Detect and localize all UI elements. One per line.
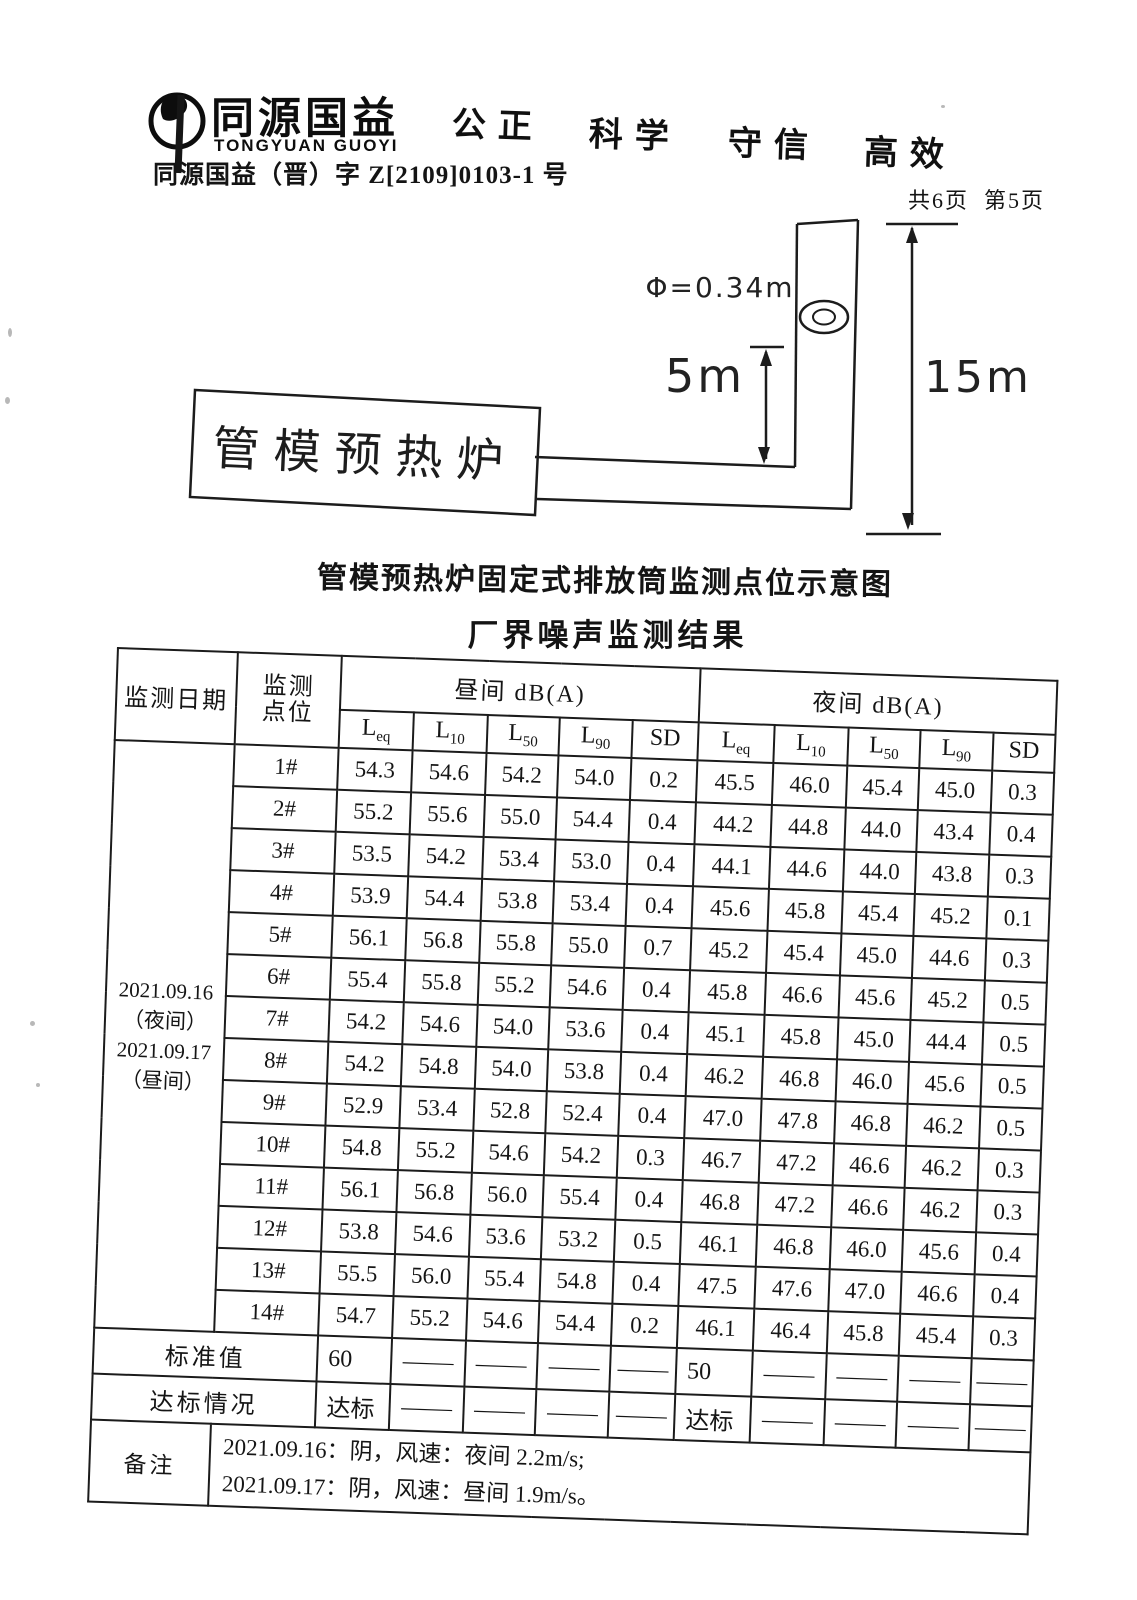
standard-row-label: 标准值 (93, 1328, 318, 1382)
value-cell: 55.2 (392, 1296, 467, 1341)
dash-placeholder: — (909, 1366, 960, 1395)
value-cell: 47.8 (760, 1099, 835, 1144)
dim15-arrow-up (906, 226, 918, 243)
value-cell: 45.6 (839, 975, 912, 1019)
metric-main: SD (649, 724, 681, 751)
metric-main: L (796, 729, 812, 755)
value-cell: 45.8 (768, 889, 843, 934)
scan-speckle (941, 105, 945, 108)
value-cell: 54.0 (476, 1005, 549, 1049)
standard-row-value: 60 (316, 1335, 392, 1384)
value-cell: 0.7 (624, 926, 691, 970)
value-cell: 55.2 (336, 790, 411, 835)
value-cell: 0.3 (978, 1148, 1041, 1192)
metric-header: SD (631, 720, 698, 760)
value-cell: 46.0 (830, 1227, 903, 1271)
noise-table-wrapper: 监测日期 监测 点位 昼间 dB(A) 夜间 dB(A) LeqL10L50L9… (87, 647, 1058, 1535)
value-cell: 45.2 (911, 978, 985, 1023)
value-cell: 46.1 (677, 1306, 754, 1351)
header-point-line2: 点位 (236, 698, 339, 728)
value-cell: 54.6 (472, 1131, 545, 1175)
value-cell: 52.4 (545, 1091, 619, 1136)
value-cell: 46.8 (756, 1225, 831, 1270)
stack-right-edge (851, 220, 858, 509)
stack-height-label: 15m (924, 352, 1032, 403)
value-cell: 46.6 (900, 1272, 974, 1317)
compliance-row-value: — (608, 1392, 676, 1440)
header-date: 监测日期 (115, 648, 238, 744)
dim5-arrow-up (760, 349, 772, 366)
compliance-row-value: — (463, 1387, 537, 1435)
metric-main: L (580, 722, 596, 748)
value-cell: 45.4 (899, 1314, 973, 1359)
metric-sub: 50 (522, 734, 538, 751)
value-cell: 0.4 (626, 884, 693, 928)
value-cell: 53.4 (482, 837, 555, 881)
value-cell: 46.6 (833, 1143, 906, 1187)
value-cell: 54.6 (402, 1002, 477, 1047)
value-cell: 46.2 (906, 1104, 980, 1149)
value-cell: 47.0 (684, 1096, 761, 1141)
value-cell: 0.4 (612, 1262, 679, 1306)
dash-placeholder: — (401, 1394, 452, 1423)
stack-left-edge (795, 224, 797, 467)
scan-speckle (8, 328, 12, 337)
value-cell: 56.8 (405, 918, 480, 963)
compliance-row-value: — (824, 1399, 898, 1447)
point-cell: 1# (233, 744, 338, 790)
value-cell: 46.8 (681, 1180, 758, 1225)
value-cell: 47.2 (759, 1141, 834, 1186)
sampling-port-inner (813, 310, 835, 325)
value-cell: 45.6 (908, 1062, 982, 1107)
value-cell: 0.5 (614, 1220, 681, 1264)
value-cell: 53.6 (469, 1215, 542, 1259)
metric-sub: eq (376, 728, 391, 744)
point-cell: 13# (216, 1248, 321, 1294)
value-cell: 55.8 (404, 960, 479, 1005)
value-cell: 0.3 (991, 771, 1054, 815)
value-cell: 54.4 (556, 797, 630, 842)
scan-speckle (5, 397, 10, 404)
point-cell: 9# (221, 1080, 326, 1126)
dash-placeholder: — (546, 1399, 597, 1428)
value-cell: 46.8 (834, 1101, 907, 1145)
slogan-integrity: 守信 (727, 115, 821, 167)
point-cell: 11# (219, 1164, 324, 1210)
dash-placeholder: — (617, 1355, 668, 1384)
compliance-row-label: 达标情况 (91, 1374, 316, 1428)
value-cell: 46.2 (905, 1146, 979, 1191)
value-cell: 45.0 (837, 1017, 910, 1061)
value-cell: 55.2 (478, 963, 551, 1007)
value-cell: 55.6 (410, 792, 485, 837)
value-cell: 53.0 (554, 839, 628, 884)
duct-bottom-line (537, 499, 851, 509)
date-line: （夜间） (105, 1004, 224, 1038)
value-cell: 45.6 (692, 886, 769, 931)
value-cell: 0.4 (973, 1274, 1036, 1318)
table-title: 厂界噪声监测结果 (80, 610, 1135, 655)
slogan-efficiency: 高效 (863, 124, 957, 176)
value-cell: 53.9 (333, 874, 408, 919)
dash-placeholder: — (548, 1353, 599, 1382)
dim5-arrow-down (758, 447, 770, 464)
value-cell: 54.8 (324, 1126, 399, 1171)
value-cell: 47.6 (754, 1267, 829, 1312)
value-cell: 56.1 (331, 916, 406, 961)
value-cell: 54.3 (337, 748, 412, 793)
value-cell: 46.7 (683, 1138, 760, 1183)
value-cell: 52.8 (473, 1089, 546, 1133)
dash-placeholder: — (762, 1406, 813, 1435)
dash-placeholder: — (975, 1414, 1026, 1443)
metric-header: L90 (919, 730, 993, 771)
metric-header: Leq (339, 710, 414, 751)
value-cell: 43.4 (916, 810, 990, 855)
value-cell: 54.6 (466, 1299, 539, 1343)
value-cell: 45.2 (913, 894, 987, 939)
slogan-fairness: 公正 (451, 96, 545, 148)
value-cell: 52.9 (325, 1084, 400, 1129)
value-cell: 45.1 (687, 1012, 764, 1057)
metric-main: L (941, 734, 957, 760)
value-cell: 55.4 (542, 1175, 616, 1220)
value-cell: 0.1 (986, 897, 1049, 941)
metric-main: SD (1008, 737, 1040, 764)
value-cell: 44.8 (770, 805, 845, 850)
point-cell: 8# (223, 1038, 328, 1084)
value-cell: 0.4 (627, 842, 694, 886)
value-cell: 0.5 (981, 1064, 1044, 1108)
value-cell: 44.6 (912, 936, 986, 981)
standard-row-value: — (609, 1346, 677, 1394)
value-cell: 46.1 (680, 1222, 757, 1267)
value-cell: 55.2 (398, 1128, 473, 1173)
noise-monitoring-table: 监测日期 监测 点位 昼间 dB(A) 夜间 dB(A) LeqL10L50L9… (87, 647, 1058, 1535)
port-height-label: 5m (665, 349, 745, 403)
value-cell: 54.6 (550, 965, 624, 1010)
metric-header: L50 (487, 715, 560, 755)
value-cell: 54.2 (485, 753, 558, 797)
value-cell: 45.6 (902, 1230, 976, 1275)
document-number: 同源国益（晋）字 Z[2109]0103-1 号 (153, 155, 569, 191)
metric-sub: 10 (450, 731, 466, 748)
dash-placeholder: — (836, 1363, 887, 1392)
value-cell: 54.6 (395, 1212, 470, 1257)
brand-name-en: TONGYUAN GUOYI (214, 136, 398, 156)
stack-top-edge (797, 220, 858, 224)
value-cell: 56.0 (470, 1173, 543, 1217)
value-cell: 56.0 (394, 1254, 469, 1299)
value-cell: 53.8 (481, 879, 554, 923)
value-cell: 53.2 (541, 1217, 615, 1262)
value-cell: 55.4 (467, 1257, 540, 1301)
date-line: （昼间） (103, 1064, 222, 1098)
value-cell: 54.8 (539, 1259, 613, 1304)
value-cell: 44.0 (843, 850, 916, 894)
compliance-row-value: — (969, 1404, 1033, 1452)
scan-speckle (30, 1021, 35, 1026)
value-cell: 45.5 (696, 760, 773, 805)
compliance-row-value: — (535, 1389, 610, 1438)
value-cell: 46.8 (762, 1057, 837, 1102)
metric-main: L (869, 732, 885, 758)
value-cell: 54.8 (401, 1044, 476, 1089)
page-indicator: 共6页 第5页 (908, 183, 1045, 215)
value-cell: 45.4 (846, 766, 919, 810)
duct-top-line (535, 457, 795, 467)
value-cell: 45.4 (766, 931, 841, 976)
value-cell: 54.6 (411, 750, 486, 795)
point-cell: 14# (214, 1290, 319, 1336)
metric-header: Leq (697, 722, 774, 763)
scan-speckle (36, 1083, 40, 1087)
metric-sub: 90 (595, 736, 611, 753)
metric-sub: 90 (956, 749, 972, 766)
value-cell: 53.8 (547, 1049, 621, 1094)
point-cell: 7# (224, 996, 329, 1042)
metric-header: L10 (413, 712, 488, 753)
value-cell: 55.8 (479, 921, 552, 965)
value-cell: 45.4 (841, 891, 914, 935)
metric-sub: eq (736, 741, 751, 757)
value-cell: 0.4 (623, 968, 690, 1012)
metric-main: L (508, 719, 524, 745)
value-cell: 56.1 (322, 1168, 397, 1213)
point-cell: 3# (230, 828, 335, 874)
value-cell: 0.4 (621, 1010, 688, 1054)
compliance-row-value: 达标 (674, 1394, 752, 1443)
value-cell: 46.2 (686, 1054, 763, 1099)
point-cell: 12# (217, 1206, 322, 1252)
standard-row-value: — (390, 1338, 466, 1387)
value-cell: 54.0 (557, 755, 631, 800)
value-cell: 43.8 (915, 852, 989, 897)
value-cell: 0.5 (982, 1022, 1045, 1066)
metric-header: SD (992, 733, 1055, 773)
monitoring-date-cell: 2021.09.16（夜间）2021.09.17（昼间） (94, 740, 234, 1332)
value-cell: 45.0 (840, 933, 913, 977)
value-cell: 47.5 (678, 1264, 755, 1309)
compliance-row-value: — (896, 1402, 971, 1451)
point-cell: 5# (227, 912, 332, 958)
value-cell: 45.8 (763, 1015, 838, 1060)
value-cell: 45.8 (827, 1311, 900, 1355)
value-cell: 0.5 (983, 980, 1046, 1024)
remark-label: 备注 (88, 1420, 211, 1506)
diameter-label: Φ=0.34m (645, 271, 794, 304)
value-cell: 0.4 (615, 1178, 682, 1222)
metric-main: L (435, 717, 451, 743)
dash-placeholder: — (907, 1412, 958, 1441)
value-cell: 53.6 (548, 1007, 622, 1052)
dash-placeholder: — (474, 1396, 525, 1425)
metric-main: L (721, 727, 737, 753)
value-cell: 46.6 (765, 973, 840, 1018)
dash-placeholder: — (835, 1409, 886, 1438)
value-cell: 54.2 (328, 1000, 403, 1045)
value-cell: 0.4 (975, 1232, 1038, 1276)
metric-header: L90 (558, 717, 632, 758)
value-cell: 0.3 (617, 1136, 684, 1180)
dim15-arrow-down (902, 513, 914, 530)
value-cell: 53.5 (334, 832, 409, 877)
metric-header: L10 (773, 725, 848, 766)
value-cell: 54.7 (318, 1293, 393, 1338)
standard-row-value: — (897, 1356, 972, 1405)
point-cell: 10# (220, 1122, 325, 1168)
value-cell: 46.0 (836, 1059, 909, 1103)
metric-header: L50 (847, 728, 920, 768)
value-cell: 55.0 (484, 795, 557, 839)
value-cell: 54.0 (475, 1047, 548, 1091)
furnace-box (190, 390, 540, 515)
slogan-science: 科学 (588, 106, 682, 158)
value-cell: 54.4 (538, 1301, 612, 1346)
value-cell: 0.3 (972, 1316, 1035, 1360)
standard-row-value: — (536, 1343, 611, 1392)
metric-main: L (361, 714, 377, 740)
value-cell: 44.0 (844, 808, 917, 852)
value-cell: 0.5 (979, 1106, 1042, 1150)
dash-placeholder: — (616, 1401, 667, 1430)
value-cell: 46.0 (772, 763, 847, 808)
standard-row-value: — (464, 1341, 538, 1389)
value-cell: 53.4 (399, 1086, 474, 1131)
value-cell: 54.2 (544, 1133, 618, 1178)
value-cell: 54.2 (327, 1042, 402, 1087)
point-cell: 2# (232, 786, 337, 832)
value-cell: 44.1 (693, 844, 770, 889)
point-cell: 6# (226, 954, 331, 1000)
value-cell: 0.3 (988, 855, 1051, 899)
value-cell: 56.8 (396, 1170, 471, 1215)
header-point: 监测 点位 (235, 652, 342, 748)
furnace-label: 管模预热炉 (211, 423, 518, 489)
value-cell: 55.5 (320, 1251, 395, 1296)
value-cell: 46.4 (753, 1309, 828, 1354)
dash-placeholder: — (476, 1350, 527, 1379)
metric-sub: 10 (810, 744, 826, 761)
figure-caption: 管模预热炉固定式排放筒监测点位示意图 (75, 550, 1135, 607)
value-cell: 45.2 (690, 928, 767, 973)
standard-row-value: — (825, 1353, 899, 1401)
value-cell: 55.0 (551, 923, 625, 968)
value-cell: 53.8 (321, 1210, 396, 1255)
value-cell: 0.3 (976, 1190, 1039, 1234)
point-cell: 4# (229, 870, 334, 916)
dash-placeholder: — (763, 1361, 814, 1390)
sampling-port-icon (800, 301, 848, 333)
value-cell: 0.4 (989, 813, 1052, 857)
value-cell: 54.2 (408, 834, 483, 879)
header-point-line1: 监测 (237, 672, 340, 702)
date-line: 2021.09.17 (104, 1034, 223, 1068)
dash-placeholder: — (976, 1368, 1027, 1397)
date-line: 2021.09.16 (107, 974, 226, 1008)
value-cell: 45.0 (918, 768, 992, 813)
dash-placeholder: — (403, 1348, 454, 1377)
value-cell: 0.4 (629, 800, 696, 844)
value-cell: 46.6 (831, 1185, 904, 1229)
value-cell: 0.2 (611, 1304, 678, 1348)
value-cell: 47.0 (828, 1269, 901, 1313)
value-cell: 0.4 (620, 1052, 687, 1096)
value-cell: 0.4 (618, 1094, 685, 1138)
value-cell: 0.2 (630, 758, 697, 802)
value-cell: 45.8 (689, 970, 766, 1015)
metric-sub: 50 (883, 746, 899, 763)
standard-row-value: — (970, 1358, 1034, 1406)
value-cell: 0.3 (985, 939, 1048, 983)
value-cell: 47.2 (757, 1183, 832, 1228)
value-cell: 54.4 (407, 876, 482, 921)
compliance-row-value: 达标 (315, 1381, 391, 1430)
standard-row-value: — (751, 1351, 827, 1400)
value-cell: 53.4 (553, 881, 627, 926)
value-cell: 46.2 (903, 1188, 977, 1233)
standard-row-value: 50 (675, 1348, 753, 1397)
scanned-report-page: 同源国益 TONGYUAN GUOYI 公正 科学 守信 高效 同源国益（晋）字… (0, 0, 1137, 1600)
value-cell: 44.2 (695, 802, 772, 847)
value-cell: 44.6 (769, 847, 844, 892)
compliance-row-value: — (389, 1384, 465, 1433)
value-cell: 44.4 (909, 1020, 983, 1065)
compliance-row-value: — (750, 1397, 826, 1446)
value-cell: 55.4 (330, 958, 405, 1003)
